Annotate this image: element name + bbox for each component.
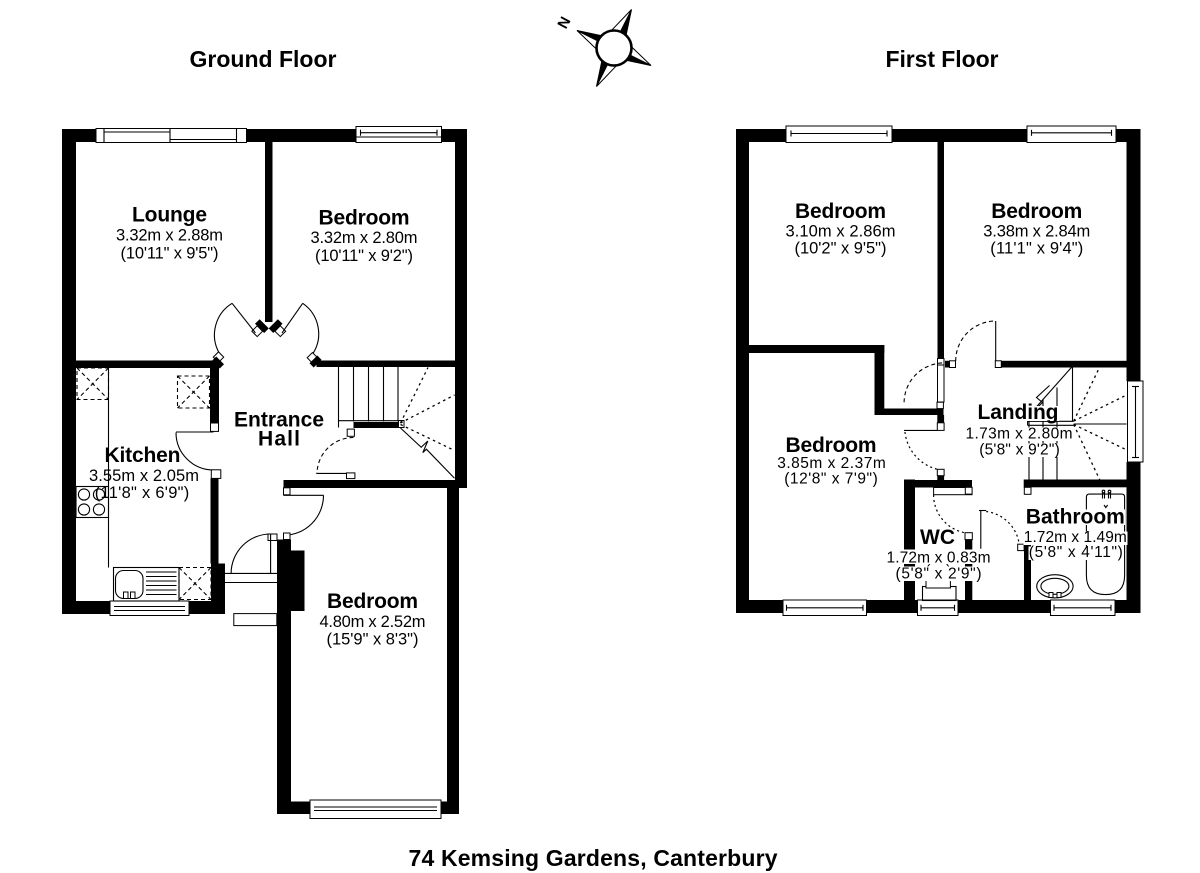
svg-text:(5'8" x 9'2"): (5'8" x 9'2")	[979, 442, 1060, 459]
svg-text:Bedroom: Bedroom	[327, 590, 418, 613]
svg-text:Bedroom: Bedroom	[786, 434, 877, 457]
svg-text:(10'11" x 9'5"): (10'11" x 9'5")	[121, 245, 219, 263]
svg-text:3.38m x 2.84m: 3.38m x 2.84m	[983, 223, 1090, 241]
svg-text:3.32m x 2.88m: 3.32m x 2.88m	[116, 227, 223, 245]
svg-text:3.32m x 2.80m: 3.32m x 2.80m	[311, 229, 418, 247]
svg-text:(10'2" x 9'5"): (10'2" x 9'5")	[795, 240, 887, 258]
svg-text:First Floor: First Floor	[886, 46, 999, 72]
svg-text:Kitchen: Kitchen	[105, 444, 181, 467]
svg-text:(11'8" x 6'9"): (11'8" x 6'9")	[95, 484, 190, 502]
svg-text:3.85m x 2.37m: 3.85m x 2.37m	[777, 455, 886, 472]
svg-text:(12'8" x 7'9"): (12'8" x 7'9")	[784, 471, 878, 488]
svg-text:(5'8" x 2'9"): (5'8" x 2'9")	[896, 566, 982, 583]
svg-text:Lounge: Lounge	[132, 204, 207, 227]
svg-text:4.80m x 2.52m: 4.80m x 2.52m	[320, 613, 426, 631]
svg-text:Hall: Hall	[258, 428, 300, 451]
svg-text:74 Kemsing Gardens, Canterbury: 74 Kemsing Gardens, Canterbury	[409, 845, 778, 871]
svg-text:1.73m x 2.80m: 1.73m x 2.80m	[966, 426, 1073, 443]
svg-text:Ground Floor: Ground Floor	[190, 46, 337, 72]
svg-text:Bathroom: Bathroom	[1026, 506, 1125, 529]
svg-text:Bedroom: Bedroom	[319, 207, 410, 230]
svg-text:(11'1" x 9'4"): (11'1" x 9'4")	[990, 240, 1083, 258]
svg-text:WC: WC	[920, 526, 955, 549]
svg-text:Landing: Landing	[978, 401, 1059, 424]
svg-text:1.72m x 0.83m: 1.72m x 0.83m	[887, 550, 991, 567]
svg-text:Bedroom: Bedroom	[795, 200, 886, 223]
svg-text:(5'8" x 4'11"): (5'8" x 4'11")	[1029, 544, 1123, 561]
svg-text:(15'9" x 8'3"): (15'9" x 8'3")	[327, 631, 419, 649]
svg-text:Bedroom: Bedroom	[991, 200, 1082, 223]
svg-text:3.10m x 2.86m: 3.10m x 2.86m	[786, 223, 896, 241]
svg-text:3.55m x 2.05m: 3.55m x 2.05m	[89, 467, 199, 485]
svg-text:(10'11" x 9'2"): (10'11" x 9'2")	[315, 247, 413, 265]
